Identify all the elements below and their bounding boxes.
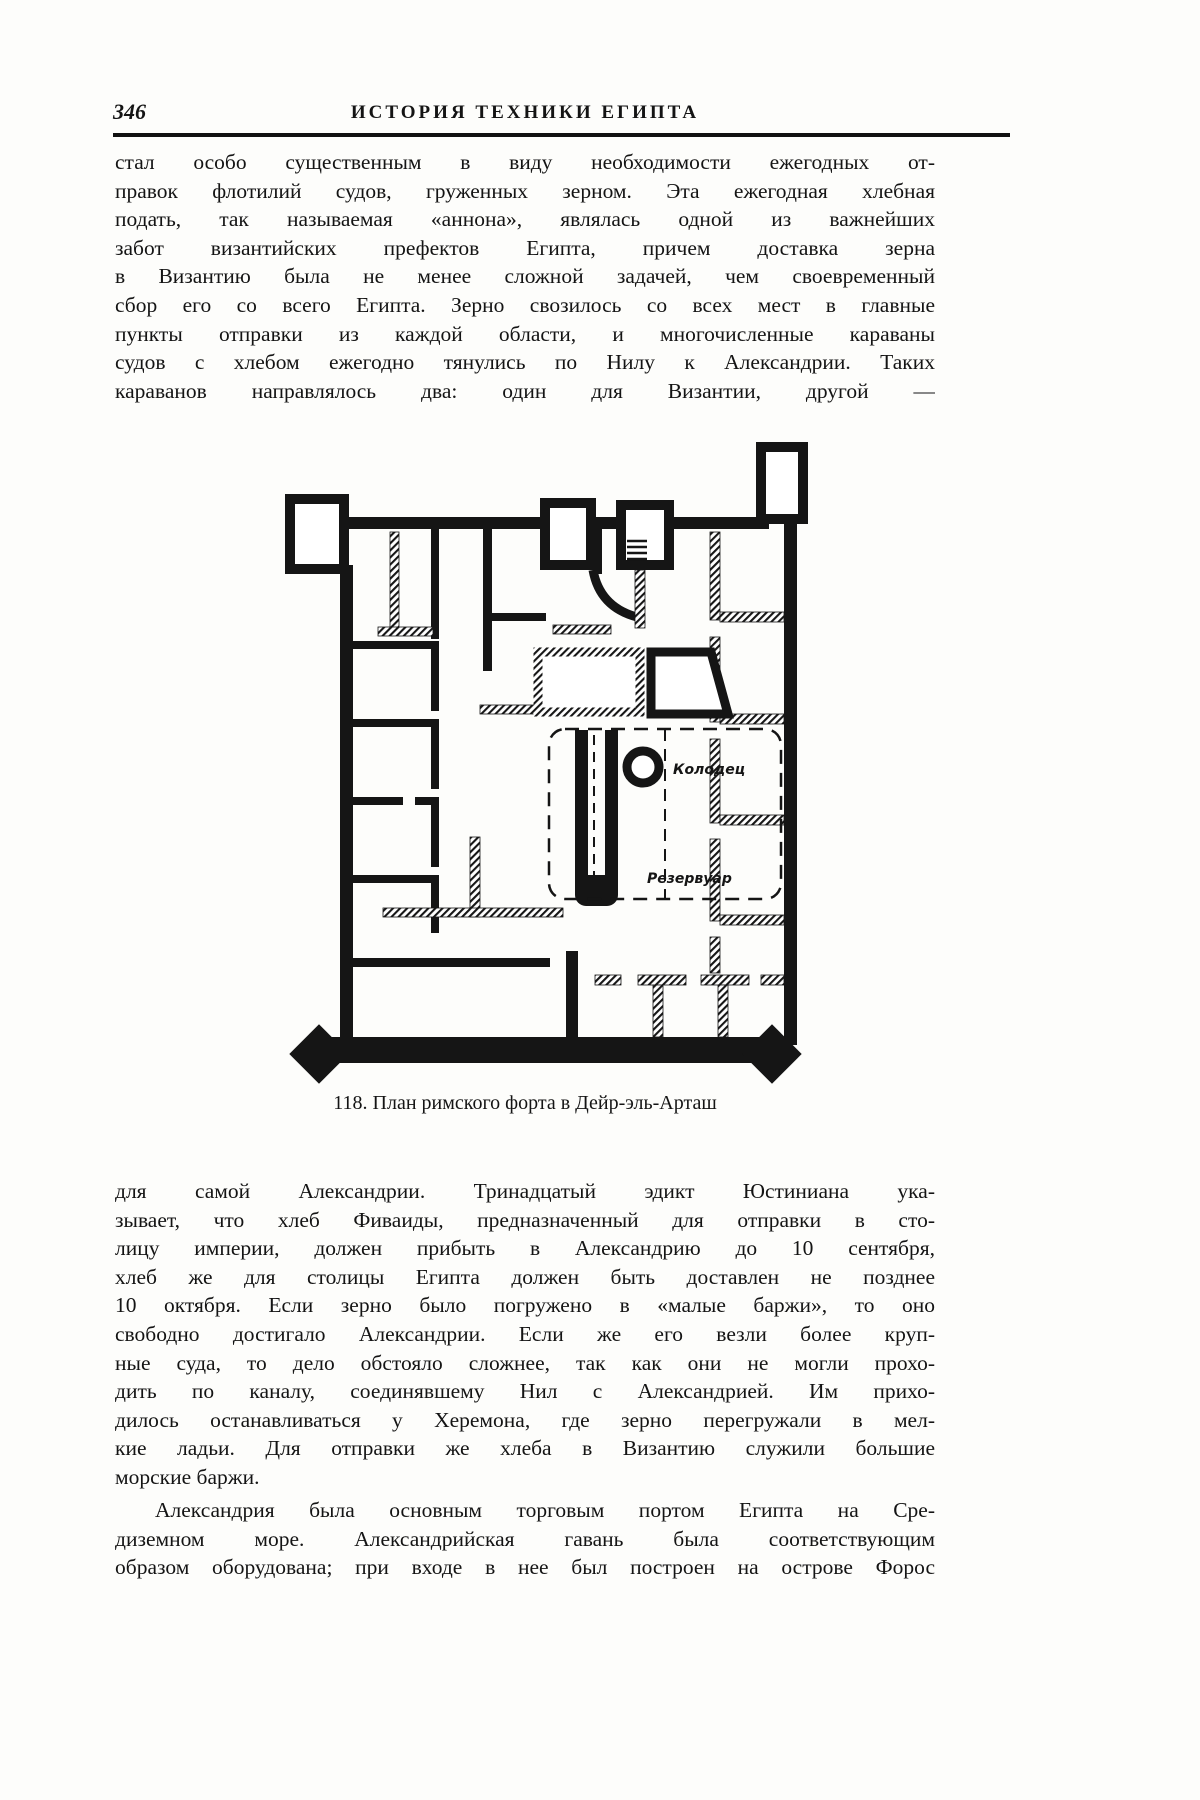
text-line: дилось останавливаться у Херемона, где з… [115,1406,935,1435]
text-line: кие ладьи. Для отправки же хлеба в Визан… [115,1434,935,1463]
text-line: подать, так называемая «аннона», являлас… [115,205,935,234]
tower-gate-2 [621,505,669,565]
well-circle [627,751,659,783]
text-line: забот византийских префектов Египта, при… [115,234,935,263]
hatched-room [538,652,640,712]
book-page: 346 ИСТОРИЯ ТЕХНИКИ ЕГИПТА стал особо су… [0,0,1200,1800]
text-line: Александрия была основным торговым порто… [115,1496,935,1525]
figure-fort-plan: Колодец Резервуар [283,437,808,1087]
text-line: в Византию была не менее сложной задачей… [115,262,935,291]
paragraph-1: стал особо существенным в виду необходим… [115,148,935,405]
paragraph-3: Александрия была основным торговым порто… [115,1496,935,1582]
text-line: дить по каналу, соединявшему Нил с Алекс… [115,1377,935,1406]
text-line: пункты отправки из каждой области, и мно… [115,320,935,349]
text-line: правок флотилий судов, груженных зерном.… [115,177,935,206]
text-line: образом оборудована; при входе в нее был… [115,1553,935,1582]
text-line: ные суда, то дело обстояло сложнее, так … [115,1349,935,1378]
text-line: хлеб же для столицы Египта должен быть д… [115,1263,935,1292]
text-line: 10 октября. Если зерно было погружено в … [115,1291,935,1320]
header-rule [113,133,1010,137]
text-line: свободно достигало Александрии. Если же … [115,1320,935,1349]
gate-towers [290,447,803,569]
text-line: сбор его со всего Египта. Зерно свозилос… [115,291,935,320]
tower-top-left [290,499,344,569]
figure-caption: 118. План римского форта в Дейр-эль-Арта… [115,1092,935,1115]
text-line: морские баржи. [115,1463,935,1492]
text-line: диземном море. Александрийская гавань бы… [115,1525,935,1554]
text-line: лицу империи, должен прибыть в Александр… [115,1234,935,1263]
fort-plan-drawing: Колодец Резервуар [283,437,808,1087]
cistern-structure [575,730,618,906]
tower-gate-1 [545,503,591,565]
text-line: для самой Александрии. Тринадцатый эдикт… [115,1177,935,1206]
tower-top-right [761,447,803,519]
text-line: судов с хлебом ежегодно тянулись по Нилу… [115,348,935,377]
curved-wall [593,570,641,618]
trapezoid-room [651,652,728,714]
reservoir-label: Резервуар [647,871,732,887]
text-line: зывает, что хлеб Фиваиды, предназначенны… [115,1206,935,1235]
text-line: караванов направлялось два: один для Виз… [115,377,935,406]
bastion-left [289,1024,348,1083]
text-line: стал особо существенным в виду необходим… [115,148,935,177]
running-title: ИСТОРИЯ ТЕХНИКИ ЕГИПТА [115,102,935,124]
well-label: Колодец [673,762,745,778]
paragraph-2: для самой Александрии. Тринадцатый эдикт… [115,1177,935,1492]
